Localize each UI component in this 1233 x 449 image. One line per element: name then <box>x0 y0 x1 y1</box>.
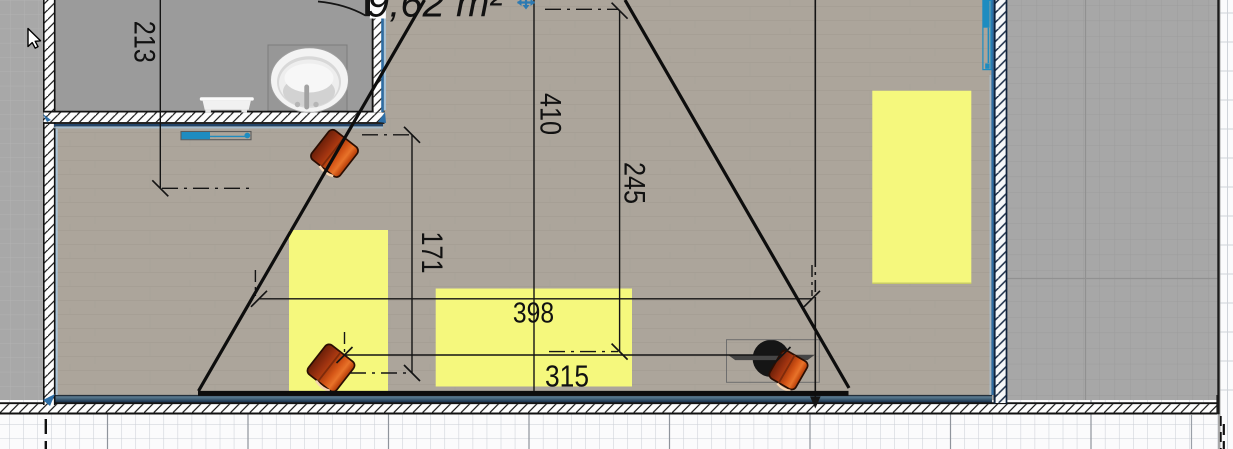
svg-text:213: 213 <box>128 21 162 63</box>
svg-text:171: 171 <box>416 231 450 273</box>
svg-text:315: 315 <box>545 360 589 394</box>
svg-text:398: 398 <box>513 297 554 329</box>
svg-text:245: 245 <box>618 162 652 204</box>
svg-text:410: 410 <box>534 93 568 135</box>
svg-text:9,62 m²: 9,62 m² <box>367 0 504 26</box>
